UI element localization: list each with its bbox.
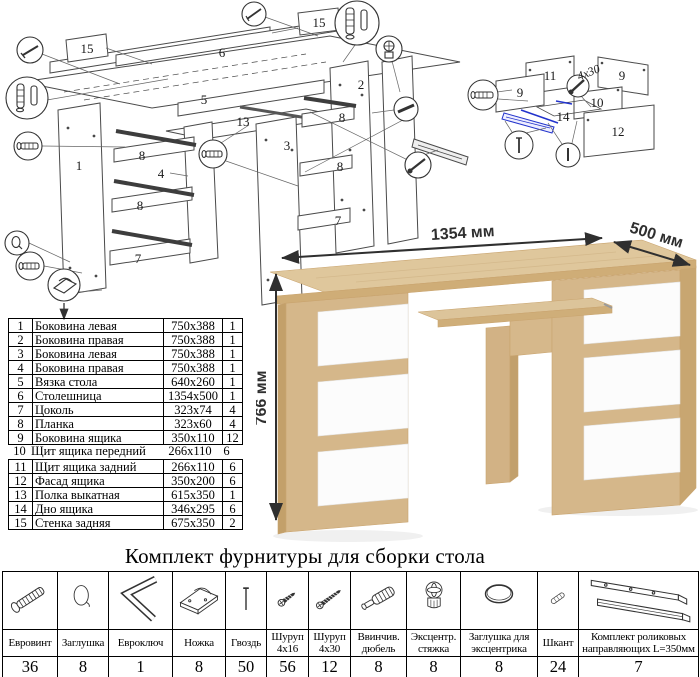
- hardware-qty: 8: [461, 657, 538, 677]
- hardware-qty: 7: [579, 657, 699, 677]
- part-label: 8: [137, 198, 144, 213]
- hardware-name: Гвоздь: [226, 630, 267, 657]
- hardware-name: Ножка: [173, 630, 226, 657]
- part-label: 8: [337, 159, 344, 174]
- dowel-pair-icon: [6, 77, 48, 119]
- part-label: 9: [517, 85, 524, 100]
- table-row: 14Дно ящика346x2956: [9, 502, 243, 516]
- part-name: Щит ящика передний: [31, 445, 161, 459]
- part-size: 750x388: [164, 347, 223, 361]
- height-dimension-label: 766 мм: [256, 371, 270, 426]
- wood-dowel-icon: [538, 572, 579, 630]
- hardware-name: Эксцентр. стяжка: [407, 630, 461, 657]
- cam-icon: [376, 36, 402, 62]
- part-name: Стенка задняя: [33, 516, 164, 530]
- part-name: Боковина левая: [33, 347, 164, 361]
- hardware-name: Заглушка: [58, 630, 109, 657]
- dowel-screw-icon: [351, 572, 407, 630]
- foot-icon: [48, 269, 80, 319]
- part-num: 8: [9, 417, 33, 431]
- hardware-name: Евроключ: [109, 630, 173, 657]
- part-name: Полка выкатная: [33, 488, 164, 502]
- hardware-qty-row: 36 8 1 8 50 56 12 8 8 8 24 7: [3, 657, 699, 677]
- part-qty: 6: [223, 474, 243, 488]
- cam-lock-icon: [407, 572, 461, 630]
- part-qty: 6: [223, 502, 243, 516]
- drawer-front[interactable]: [318, 304, 408, 366]
- cap-icon: [5, 231, 29, 255]
- parts-table: 1Боковина левая750x3881 2Боковина правая…: [8, 318, 243, 530]
- part-qty: 1: [223, 389, 243, 403]
- part-qty: 1: [223, 361, 243, 375]
- euroscrew-icon: [199, 140, 227, 168]
- part-num: 7: [9, 403, 33, 417]
- part-num: 13: [9, 488, 33, 502]
- drawer-front[interactable]: [318, 444, 408, 506]
- pin-icon: [556, 143, 580, 167]
- part-size: 750x388: [164, 361, 223, 375]
- euroscrew-icon: [16, 252, 44, 280]
- hardware-name: Шкант: [538, 630, 579, 657]
- part-qty: 1: [223, 375, 243, 389]
- part-name: Боковина левая: [33, 319, 164, 333]
- hardware-name: Шуруп 4x16: [267, 630, 309, 657]
- part-size: 1354x500: [164, 389, 223, 403]
- part-label: 12: [612, 124, 625, 139]
- assembly-instruction-sheet: 15 15 6 5 13 1 4 8 8 7 2 3 8 8 7: [0, 0, 700, 677]
- part-size: 323x60: [164, 417, 223, 431]
- part-name: Планка: [33, 417, 164, 431]
- part-num: 9: [9, 431, 33, 445]
- hardware-qty: 56: [267, 657, 309, 677]
- hardware-name: Комплект роликовых направляющих L=350мм: [579, 630, 699, 657]
- part-label: 2: [358, 77, 365, 92]
- nail-icon: [505, 131, 533, 159]
- hardware-kit-table: Евровинт Заглушка Евроключ Ножка Гвоздь …: [2, 571, 699, 677]
- part-num: 3: [9, 347, 33, 361]
- roller-rails-icon: [579, 572, 699, 630]
- hardware-qty: 12: [309, 657, 351, 677]
- table-row: 8Планка323x604: [9, 417, 243, 431]
- part-size: 675x350: [164, 516, 223, 530]
- hardware-qty: 8: [351, 657, 407, 677]
- euroscrew-icon: [14, 132, 42, 160]
- hardware-name: Заглушка для эксцентрика: [461, 630, 538, 657]
- part-label: 13: [237, 114, 250, 129]
- part-num: 6: [9, 389, 33, 403]
- part-size: 750x388: [164, 319, 223, 333]
- part-size: 323x74: [164, 403, 223, 417]
- part-qty: 2: [223, 516, 243, 530]
- part-label: 3: [284, 138, 291, 153]
- left-side-panel-1: [58, 103, 106, 295]
- hardware-name: Шуруп 4x30: [309, 630, 351, 657]
- part-size: 750x388: [164, 333, 223, 347]
- part-size: 615x350: [164, 488, 223, 502]
- part-name: Столешница: [33, 389, 164, 403]
- cam-cap-icon: [461, 572, 538, 630]
- hardware-qty: 8: [58, 657, 109, 677]
- hardware-icons-row: [3, 572, 699, 630]
- table-row: 15Стенка задняя675x3502: [9, 516, 243, 530]
- part-label: 14: [557, 109, 571, 124]
- parts-table-block2: 11Щит ящика задний266x1106 12Фасад ящика…: [8, 459, 243, 530]
- part-num: 15: [9, 516, 33, 530]
- part-num: 4: [9, 361, 33, 375]
- part-label: 15: [313, 15, 326, 30]
- hardware-qty: 8: [407, 657, 461, 677]
- table-row: 4Боковина правая750x3881: [9, 361, 243, 375]
- drawer-front[interactable]: [318, 374, 408, 436]
- part-name: Боковина ящика: [33, 431, 164, 445]
- hardware-names-row: Евровинт Заглушка Евроключ Ножка Гвоздь …: [3, 630, 699, 657]
- part-label: 8: [339, 110, 346, 125]
- part-label: 5: [201, 92, 208, 107]
- nail-icon: [242, 2, 266, 26]
- rail-end-icon: [394, 97, 418, 121]
- hardware-qty: 1: [109, 657, 173, 677]
- table-row: 7Цоколь323x744: [9, 403, 243, 417]
- left-pedestal-slats: [110, 131, 196, 265]
- hardware-qty: 8: [173, 657, 226, 677]
- euroscrew-icon: [468, 80, 498, 110]
- part-num: 11: [9, 460, 33, 474]
- part-label: 15: [81, 41, 94, 56]
- part-qty: 12: [223, 431, 243, 445]
- part-size: 350x110: [164, 431, 223, 445]
- part-num: 14: [9, 502, 33, 516]
- hardware-kit-title: Комплект фурнитуры для сборки стола: [0, 544, 610, 569]
- parts-table-block1: 1Боковина левая750x3881 2Боковина правая…: [8, 318, 243, 445]
- part-name: Цоколь: [33, 403, 164, 417]
- table-row-borderless: 10 Щит ящика передний 266x110 6: [8, 445, 243, 459]
- desk-render: 1354 мм 500 мм 766 мм: [256, 220, 700, 550]
- right-pedestal-slats: [298, 98, 468, 230]
- part-size: 266x110: [164, 460, 223, 474]
- screw-long-icon: [309, 572, 351, 630]
- table-row: 9Боковина ящика350x11012: [9, 431, 243, 445]
- cap-icon: [58, 572, 109, 630]
- table-row: 6Столешница1354x5001: [9, 389, 243, 403]
- part-name: Вязка стола: [33, 375, 164, 389]
- part-label: 9: [619, 68, 626, 83]
- part-label: 10: [591, 95, 604, 110]
- hexkey-icon: [109, 572, 173, 630]
- part-label: 6: [219, 45, 226, 60]
- part-size: 266x110: [161, 445, 219, 459]
- part-qty: 6: [219, 445, 234, 459]
- euroscrew-icon: [3, 572, 58, 630]
- part-size: 640x260: [164, 375, 223, 389]
- part-num: 1: [9, 319, 33, 333]
- part-label: 4: [158, 166, 165, 181]
- part-name: Щит ящика задний: [33, 460, 164, 474]
- part-name: Фасад ящика: [33, 474, 164, 488]
- drawer-front[interactable]: [584, 418, 680, 480]
- part-num: 2: [9, 333, 33, 347]
- dowel-pair-icon: [335, 1, 379, 45]
- hardware-qty: 24: [538, 657, 579, 677]
- part-label: 7: [135, 251, 142, 266]
- screw-icon: [405, 152, 431, 178]
- hardware-name: Евровинт: [3, 630, 58, 657]
- desk-back-brace: [510, 316, 552, 356]
- hardware-qty: 36: [3, 657, 58, 677]
- table-row: 13Полка выкатная615x3501: [9, 488, 243, 502]
- foot-icon: [173, 572, 226, 630]
- part-label: 11: [544, 68, 557, 83]
- part-size: 350x200: [164, 474, 223, 488]
- hardware-qty: 50: [226, 657, 267, 677]
- left-pedestal-side: [278, 303, 286, 534]
- table-row: 2Боковина правая750x3881: [9, 333, 243, 347]
- part-name: Боковина правая: [33, 333, 164, 347]
- table-row: 5Вязка стола640x2601: [9, 375, 243, 389]
- part-qty: 1: [223, 347, 243, 361]
- part-size: 346x295: [164, 502, 223, 516]
- part-qty: 1: [223, 488, 243, 502]
- nail-icon: [17, 37, 43, 63]
- part-qty: 1: [223, 333, 243, 347]
- part-name: Дно ящика: [33, 502, 164, 516]
- right-pedestal-side: [680, 266, 696, 505]
- part-num: 5: [9, 375, 33, 389]
- part-qty: 4: [223, 403, 243, 417]
- table-row: 1Боковина левая750x3881: [9, 319, 243, 333]
- screw-short-icon: [267, 572, 309, 630]
- nail-icon: [226, 572, 267, 630]
- part-qty: 1: [223, 319, 243, 333]
- drawer-front[interactable]: [584, 350, 680, 412]
- part-name: Боковина правая: [33, 361, 164, 375]
- part-label: 8: [139, 148, 146, 163]
- width-dimension-label: 1354 мм: [430, 223, 495, 244]
- part-qty: 4: [223, 417, 243, 431]
- desk-middle-post: [486, 326, 510, 484]
- part-qty: 6: [223, 460, 243, 474]
- table-row: 11Щит ящика задний266x1106: [9, 460, 243, 474]
- exploded-diagram-drawer: 11 9 9 10 14 12 4x30: [468, 56, 654, 167]
- part-num: 10: [8, 445, 31, 459]
- left-pedestal-drawers: [318, 304, 408, 506]
- table-row: 12Фасад ящика350x2006: [9, 474, 243, 488]
- part-label: 1: [76, 158, 83, 173]
- hardware-name: Ввинчив. дюбель: [351, 630, 407, 657]
- table-row: 3Боковина левая750x3881: [9, 347, 243, 361]
- part-num: 12: [9, 474, 33, 488]
